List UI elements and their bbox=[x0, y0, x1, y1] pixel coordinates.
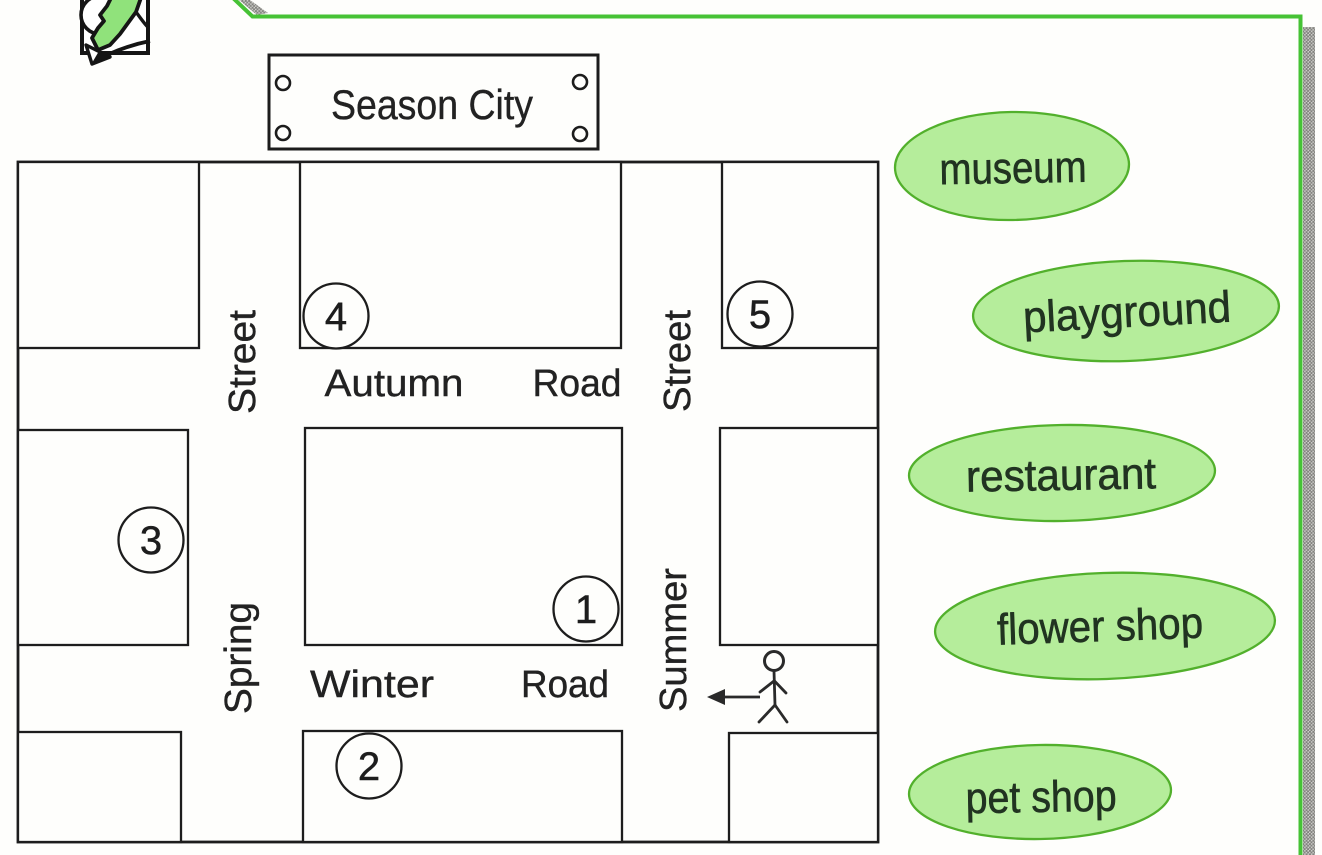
svg-text:3: 3 bbox=[140, 519, 162, 563]
svg-text:Autumn: Autumn bbox=[325, 363, 464, 405]
svg-text:pet shop: pet shop bbox=[965, 772, 1117, 824]
svg-text:Season City: Season City bbox=[331, 81, 533, 128]
svg-text:Winter: Winter bbox=[310, 664, 434, 706]
svg-text:Road: Road bbox=[521, 664, 609, 706]
svg-text:4: 4 bbox=[325, 295, 347, 339]
svg-text:restaurant: restaurant bbox=[966, 449, 1157, 501]
svg-text:flower shop: flower shop bbox=[996, 599, 1204, 655]
svg-text:2: 2 bbox=[358, 745, 380, 789]
svg-text:5: 5 bbox=[749, 293, 771, 337]
svg-text:museum: museum bbox=[939, 143, 1087, 195]
svg-text:Road: Road bbox=[533, 363, 622, 405]
svg-text:Street: Street bbox=[657, 310, 699, 412]
svg-text:1: 1 bbox=[575, 588, 597, 632]
svg-text:Street: Street bbox=[222, 310, 264, 414]
svg-text:Summer: Summer bbox=[653, 568, 695, 712]
svg-text:Spring: Spring bbox=[218, 602, 260, 714]
